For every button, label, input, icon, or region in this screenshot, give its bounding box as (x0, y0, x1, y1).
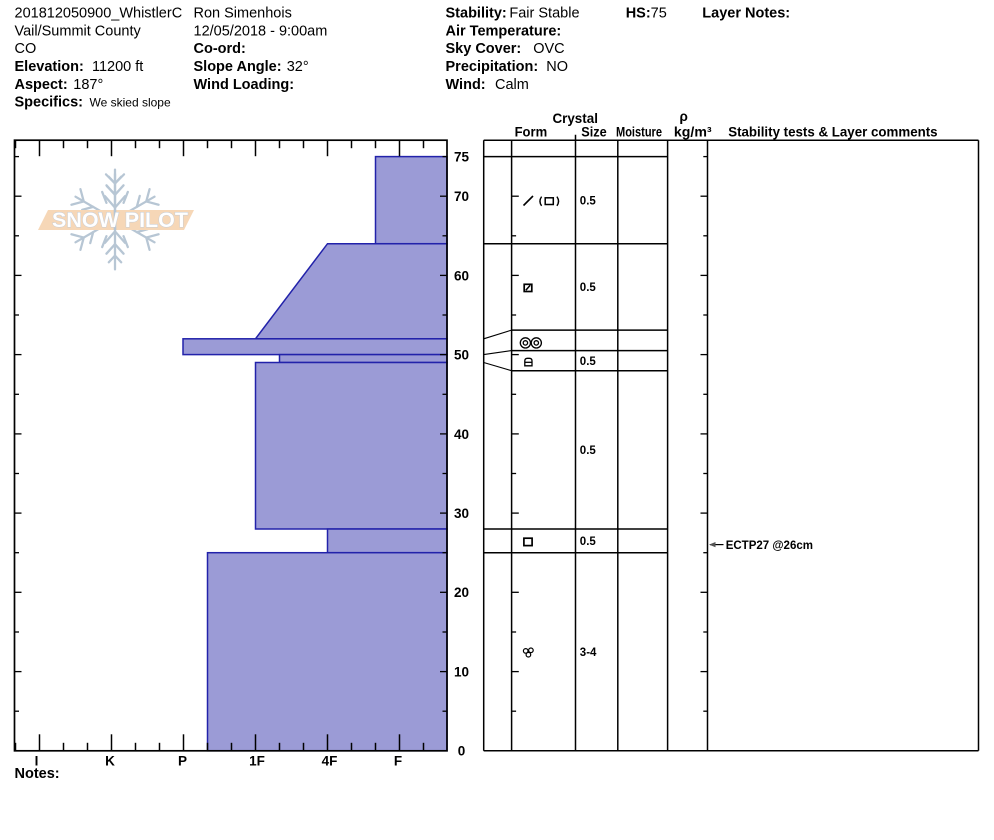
svg-text:Wind:Calm: Wind:Calm (446, 77, 529, 93)
svg-text:40: 40 (454, 427, 469, 442)
svg-text:1F: 1F (249, 754, 265, 769)
svg-text:0: 0 (458, 744, 466, 759)
svg-text:Wind Loading:: Wind Loading: (194, 77, 295, 93)
svg-text:30: 30 (454, 506, 469, 521)
svg-text:Ron Simenhois: Ron Simenhois (194, 6, 292, 22)
svg-text:Layer Notes:: Layer Notes: (702, 6, 790, 22)
svg-text:201812050900_WhistlerC: 201812050900_WhistlerC (15, 6, 183, 22)
svg-text:Co-ord:: Co-ord: (194, 41, 246, 57)
svg-text:K: K (105, 754, 115, 769)
svg-text:P: P (178, 754, 187, 769)
svg-text:CO: CO (15, 41, 37, 57)
svg-text:0.5: 0.5 (580, 282, 597, 294)
svg-text:Aspect:187°: Aspect:187° (15, 77, 104, 93)
svg-text:60: 60 (454, 268, 469, 283)
svg-text:Specifics:We skied slope: Specifics:We skied slope (15, 95, 171, 111)
svg-text:ECTP27 @26cm: ECTP27 @26cm (726, 540, 813, 552)
svg-text:F: F (394, 754, 402, 769)
svg-text:0.5: 0.5 (580, 195, 597, 207)
svg-text:Stability:Fair Stable: Stability:Fair Stable (446, 6, 580, 22)
svg-text:50: 50 (454, 348, 469, 363)
svg-text:10: 10 (454, 664, 469, 679)
svg-text:75: 75 (454, 149, 470, 164)
svg-text:Moisture: Moisture (616, 124, 662, 139)
svg-text:20: 20 (454, 585, 469, 600)
svg-text:Stability tests & Layer commen: Stability tests & Layer comments (728, 124, 937, 139)
svg-text:Slope Angle:32°: Slope Angle:32° (194, 59, 309, 75)
svg-text:0.5: 0.5 (580, 445, 597, 457)
svg-text:Vail/Summit County: Vail/Summit County (15, 23, 142, 39)
svg-text:0.5: 0.5 (580, 356, 597, 368)
svg-text:Sky Cover:OVC: Sky Cover:OVC (446, 41, 565, 57)
svg-text:HS:75: HS:75 (626, 6, 667, 22)
svg-text:kg/m³: kg/m³ (674, 124, 712, 139)
svg-text:12/05/2018 - 9:00am: 12/05/2018 - 9:00am (194, 23, 328, 39)
svg-text:Precipitation:NO: Precipitation:NO (446, 59, 569, 75)
svg-text:0.5: 0.5 (580, 536, 597, 548)
svg-text:Form: Form (515, 124, 548, 139)
svg-text:ρ: ρ (680, 109, 688, 124)
svg-text:Elevation:11200 ft: Elevation:11200 ft (15, 59, 144, 75)
svg-text:70: 70 (454, 189, 469, 204)
svg-text:Air Temperature:: Air Temperature: (446, 23, 562, 39)
svg-text:SNOW PILOT: SNOW PILOT (52, 208, 188, 232)
svg-text:Size: Size (581, 124, 607, 139)
svg-text:I: I (35, 754, 39, 769)
svg-text:4F: 4F (322, 754, 338, 769)
svg-text:3-4: 3-4 (580, 647, 597, 659)
